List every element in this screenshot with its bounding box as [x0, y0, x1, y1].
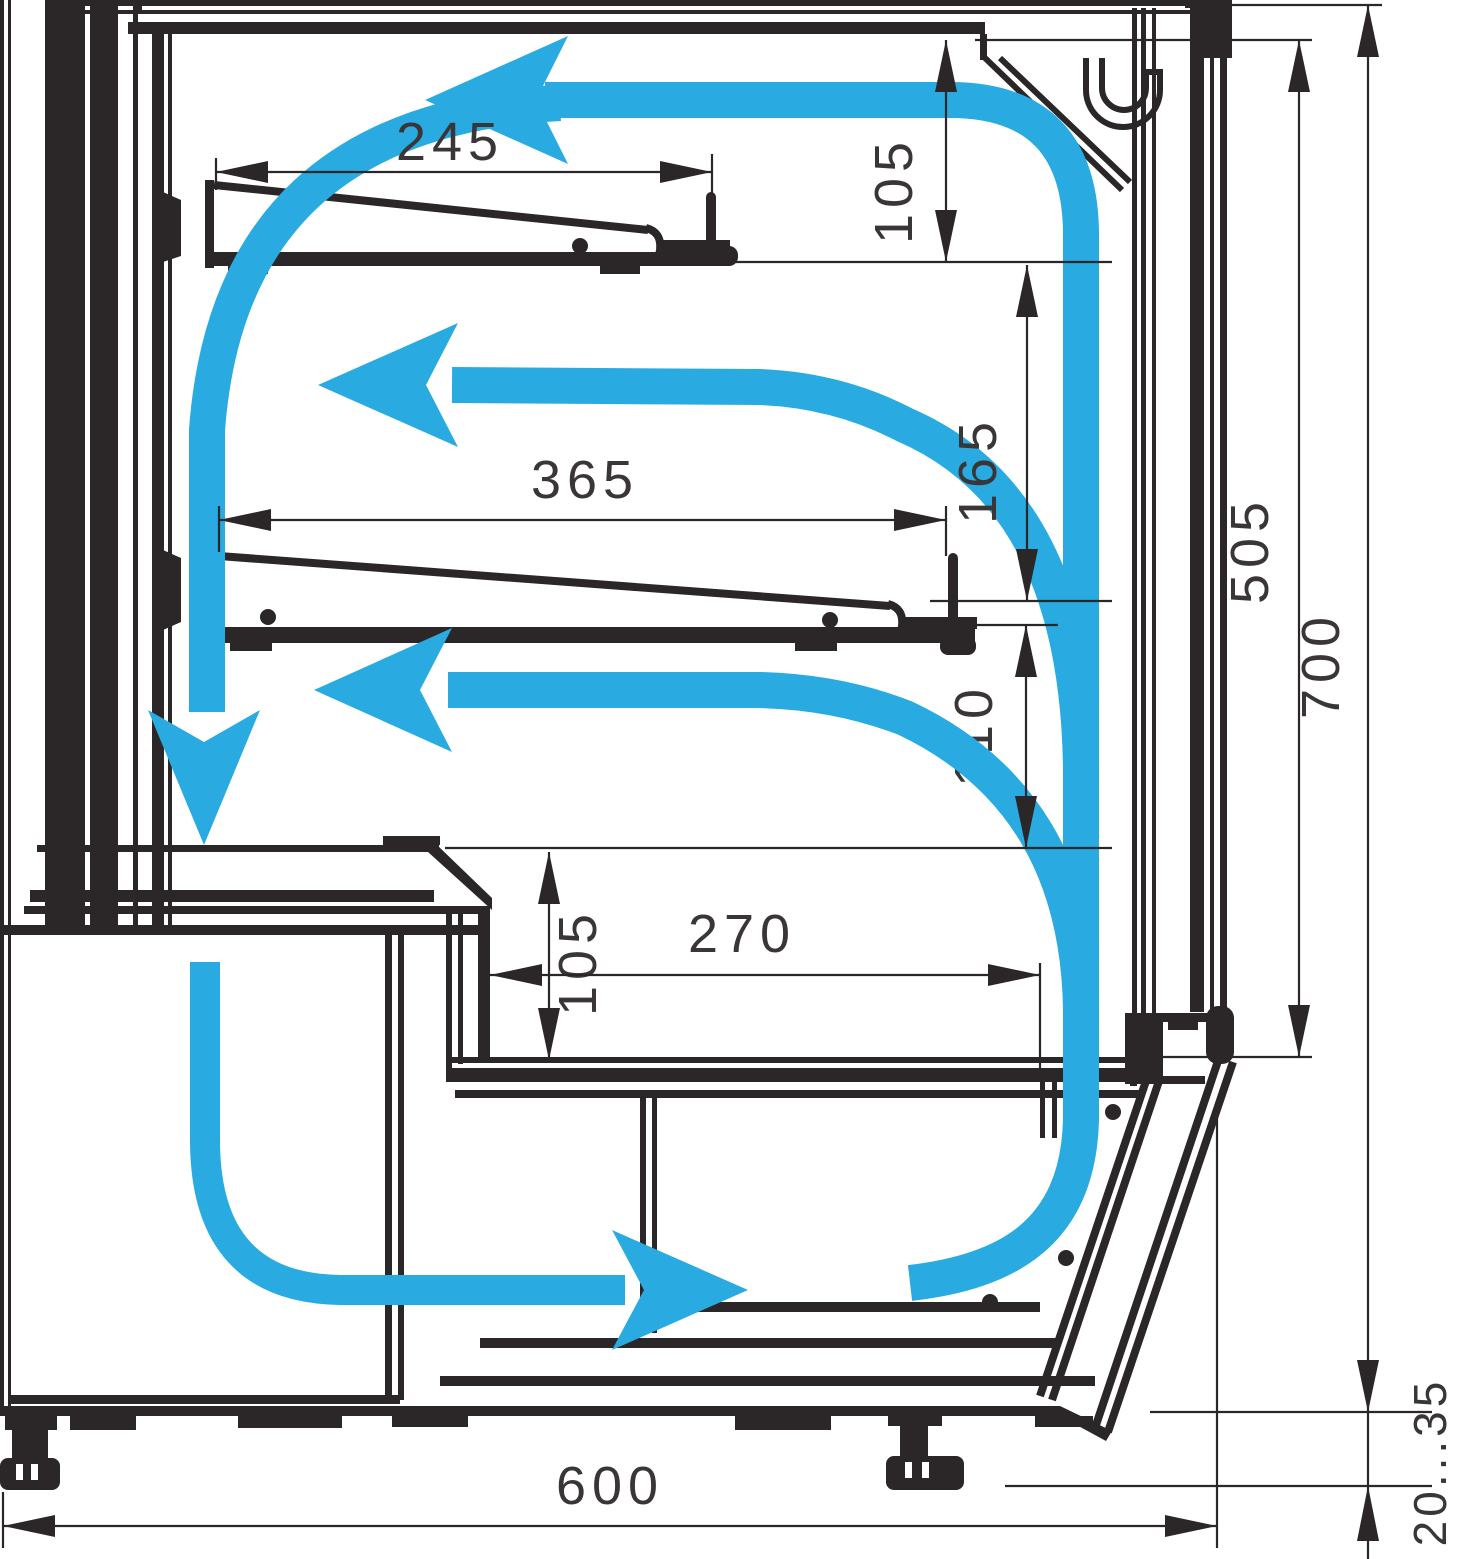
dim-600-label: 600 [556, 1456, 664, 1516]
shelf-bracket-icon [163, 550, 181, 630]
dim-365: 365 [219, 450, 946, 556]
dim-20-35: 20...35 [1357, 1378, 1456, 1559]
shelf-2 [210, 552, 977, 655]
dim-700: 700 [1291, 5, 1379, 1412]
price-rail-pin-icon [948, 553, 958, 629]
dim-505: 505 [1220, 40, 1310, 1057]
price-rail-pin-icon [706, 192, 716, 256]
dim-165-label: 165 [948, 416, 1008, 524]
dim-700-label: 700 [1291, 611, 1351, 719]
lamp-holder-icon [1086, 58, 1160, 127]
dim-20-35-label: 20...35 [1404, 1378, 1456, 1547]
airflow-dimension-diagram: 110 [0, 0, 1468, 1559]
airflow-arrow-left-icon [318, 323, 458, 447]
front-glass [1132, 0, 1227, 1060]
dim-505-label: 505 [1220, 496, 1280, 604]
dim-245-label: 245 [396, 112, 504, 172]
dim-245: 245 [216, 112, 712, 196]
dim-365-label: 365 [531, 450, 639, 510]
shelf-bracket-icon [163, 192, 181, 262]
back-wall [0, 0, 181, 1410]
dim-270-label: 270 [688, 904, 796, 964]
dim-105-top: 105 [864, 40, 957, 262]
adjustable-foot [0, 1416, 60, 1490]
dim-105-bottom-label: 105 [548, 908, 608, 1016]
dim-105-top-label: 105 [864, 136, 924, 244]
airflow-arrow-left-icon [314, 628, 452, 752]
dim-165: 165 [948, 265, 1038, 601]
airflow-arrow-right-icon [612, 1230, 748, 1350]
airflow-arrow-down-icon [148, 710, 260, 845]
dim-105-bottom: 105 [538, 852, 608, 1060]
drawing-canvas: 110 [0, 0, 1468, 1559]
adjustable-foot [886, 1412, 964, 1490]
dim-600: 600 [3, 1115, 1217, 1548]
